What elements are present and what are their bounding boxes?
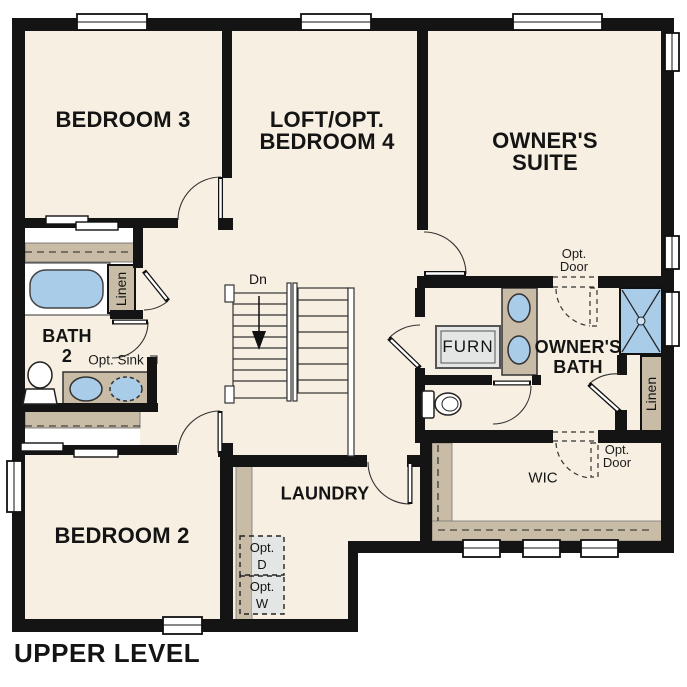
room-label-bedroom2: BEDROOM 2 [54, 523, 189, 549]
newel-post [225, 285, 234, 302]
opt-sink-label: Opt. Sink [88, 353, 144, 368]
opt-door-label-wic: Opt. Door [603, 443, 631, 469]
linen-label-owners: Linen [643, 377, 659, 411]
plan-title: UPPER LEVEL [14, 638, 200, 669]
room-label-wic: WIC [528, 470, 557, 487]
wall-segment [220, 443, 233, 632]
sink [70, 377, 102, 401]
wall-segment [417, 276, 553, 288]
wall-segment [415, 430, 553, 443]
wall-segment [222, 30, 232, 178]
stair-railing [348, 288, 354, 456]
window [581, 540, 618, 557]
wall-segment [615, 410, 627, 432]
window [301, 14, 371, 30]
window [463, 540, 500, 557]
room-label-laundry: LAUNDRY [281, 484, 370, 505]
window [665, 236, 679, 269]
newel-post [225, 386, 234, 403]
shower-drain [637, 317, 645, 325]
window [523, 540, 560, 557]
toilet-owners [422, 391, 461, 418]
window [513, 14, 602, 30]
wall-segment [417, 30, 428, 230]
wall-segment [420, 443, 432, 541]
window [665, 33, 679, 71]
furnace-label: FURN [442, 337, 493, 357]
opt-washer-label: Opt. W [250, 578, 275, 612]
bedroom2-closet-shelf [25, 410, 140, 428]
wall-segment [348, 541, 358, 632]
opt-dryer-label: Opt. D [250, 539, 275, 573]
room-label-owners-bath: OWNER'S BATH [535, 337, 622, 377]
wall-segment [147, 357, 157, 407]
opt-door-label-suite: Opt. Door [560, 247, 588, 273]
window [7, 461, 22, 512]
wall-segment [415, 288, 425, 317]
window [163, 617, 202, 634]
room-label-loft: LOFT/OPT. BEDROOM 4 [259, 109, 394, 153]
sink [508, 294, 530, 322]
bathtub [30, 270, 103, 308]
sink [508, 336, 530, 364]
wic-shelf-bottom [432, 521, 662, 541]
room-label-owners-suite: OWNER'S SUITE [492, 130, 598, 174]
wall-segment [598, 276, 674, 288]
room-label-bath2: BATH 2 [42, 326, 91, 366]
room-label-bedroom3: BEDROOM 3 [55, 107, 190, 133]
stair-railing [293, 283, 297, 401]
wall-segment [348, 541, 674, 553]
wall-segment [12, 18, 25, 632]
wall-segment [110, 310, 143, 319]
shower [620, 288, 662, 354]
wall-segment [228, 455, 367, 467]
window [77, 14, 147, 30]
linen-label-bath2: Linen [113, 272, 129, 306]
window [665, 292, 679, 346]
optional-sink [110, 377, 142, 401]
stair-railing [287, 283, 291, 401]
wall-segment [415, 375, 492, 385]
stairs-down-label: Dn [249, 271, 267, 287]
wall-segment [133, 228, 143, 268]
floor-plan: BEDROOM 3 LOFT/OPT. BEDROOM 4 OWNER'S SU… [0, 0, 687, 687]
